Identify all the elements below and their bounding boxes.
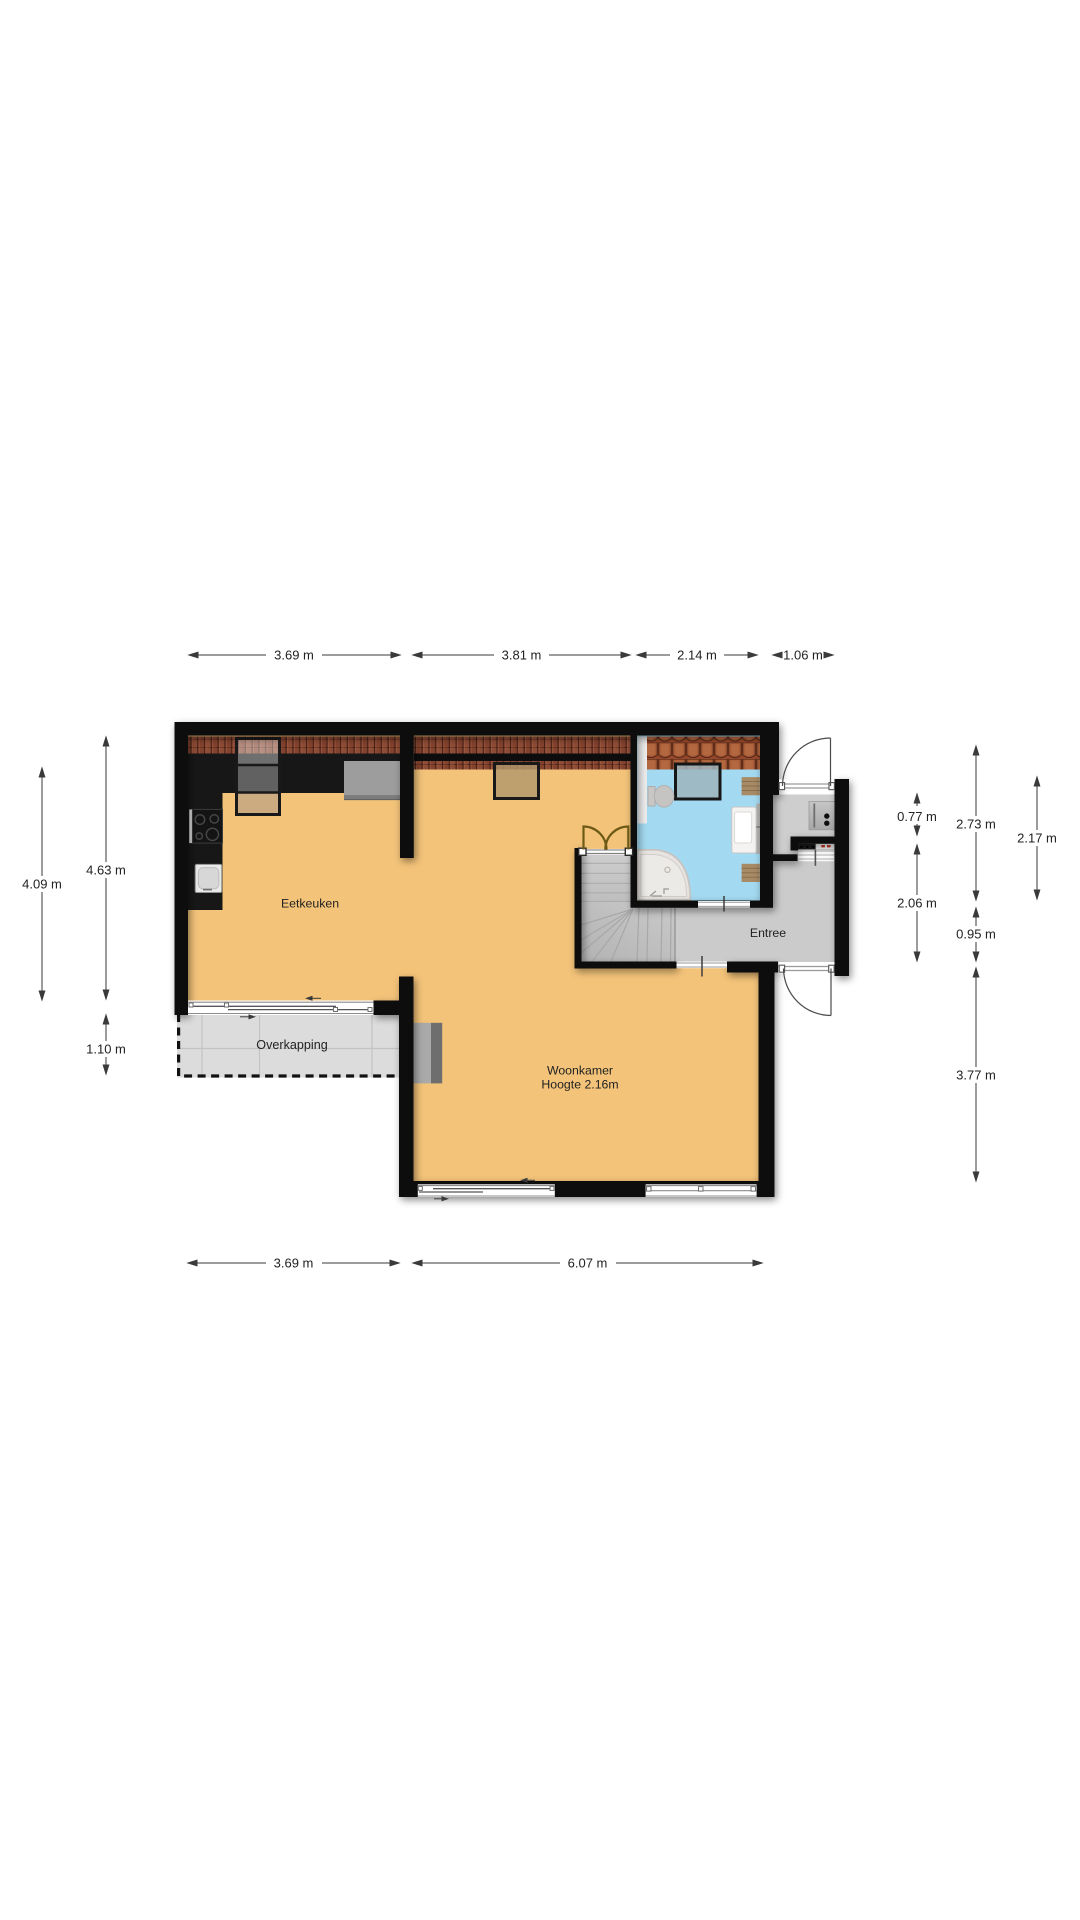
svg-text:0.77 m: 0.77 m [897, 809, 937, 824]
svg-text:3.77 m: 3.77 m [956, 1068, 996, 1083]
svg-text:0.95 m: 0.95 m [956, 927, 996, 942]
svg-text:4.63 m: 4.63 m [86, 863, 126, 878]
svg-text:2.17 m: 2.17 m [1017, 831, 1057, 846]
svg-text:1.06 m: 1.06 m [783, 648, 823, 663]
svg-text:1.10 m: 1.10 m [86, 1042, 126, 1057]
svg-text:3.81 m: 3.81 m [502, 648, 542, 663]
svg-text:Entree: Entree [750, 926, 786, 940]
svg-text:6.07 m: 6.07 m [568, 1256, 608, 1271]
svg-text:Eetkeuken: Eetkeuken [281, 897, 339, 911]
svg-text:Woonkamer: Woonkamer [547, 1064, 613, 1078]
svg-text:2.14 m: 2.14 m [677, 648, 717, 663]
svg-text:2.06 m: 2.06 m [897, 896, 937, 911]
svg-text:3.69 m: 3.69 m [274, 1256, 314, 1271]
svg-text:2.73 m: 2.73 m [956, 817, 996, 832]
svg-text:4.09 m: 4.09 m [22, 877, 62, 892]
svg-text:Overkapping: Overkapping [256, 1038, 327, 1052]
svg-text:Hoogte 2.16m: Hoogte 2.16m [541, 1078, 618, 1092]
svg-text:3.69 m: 3.69 m [274, 648, 314, 663]
